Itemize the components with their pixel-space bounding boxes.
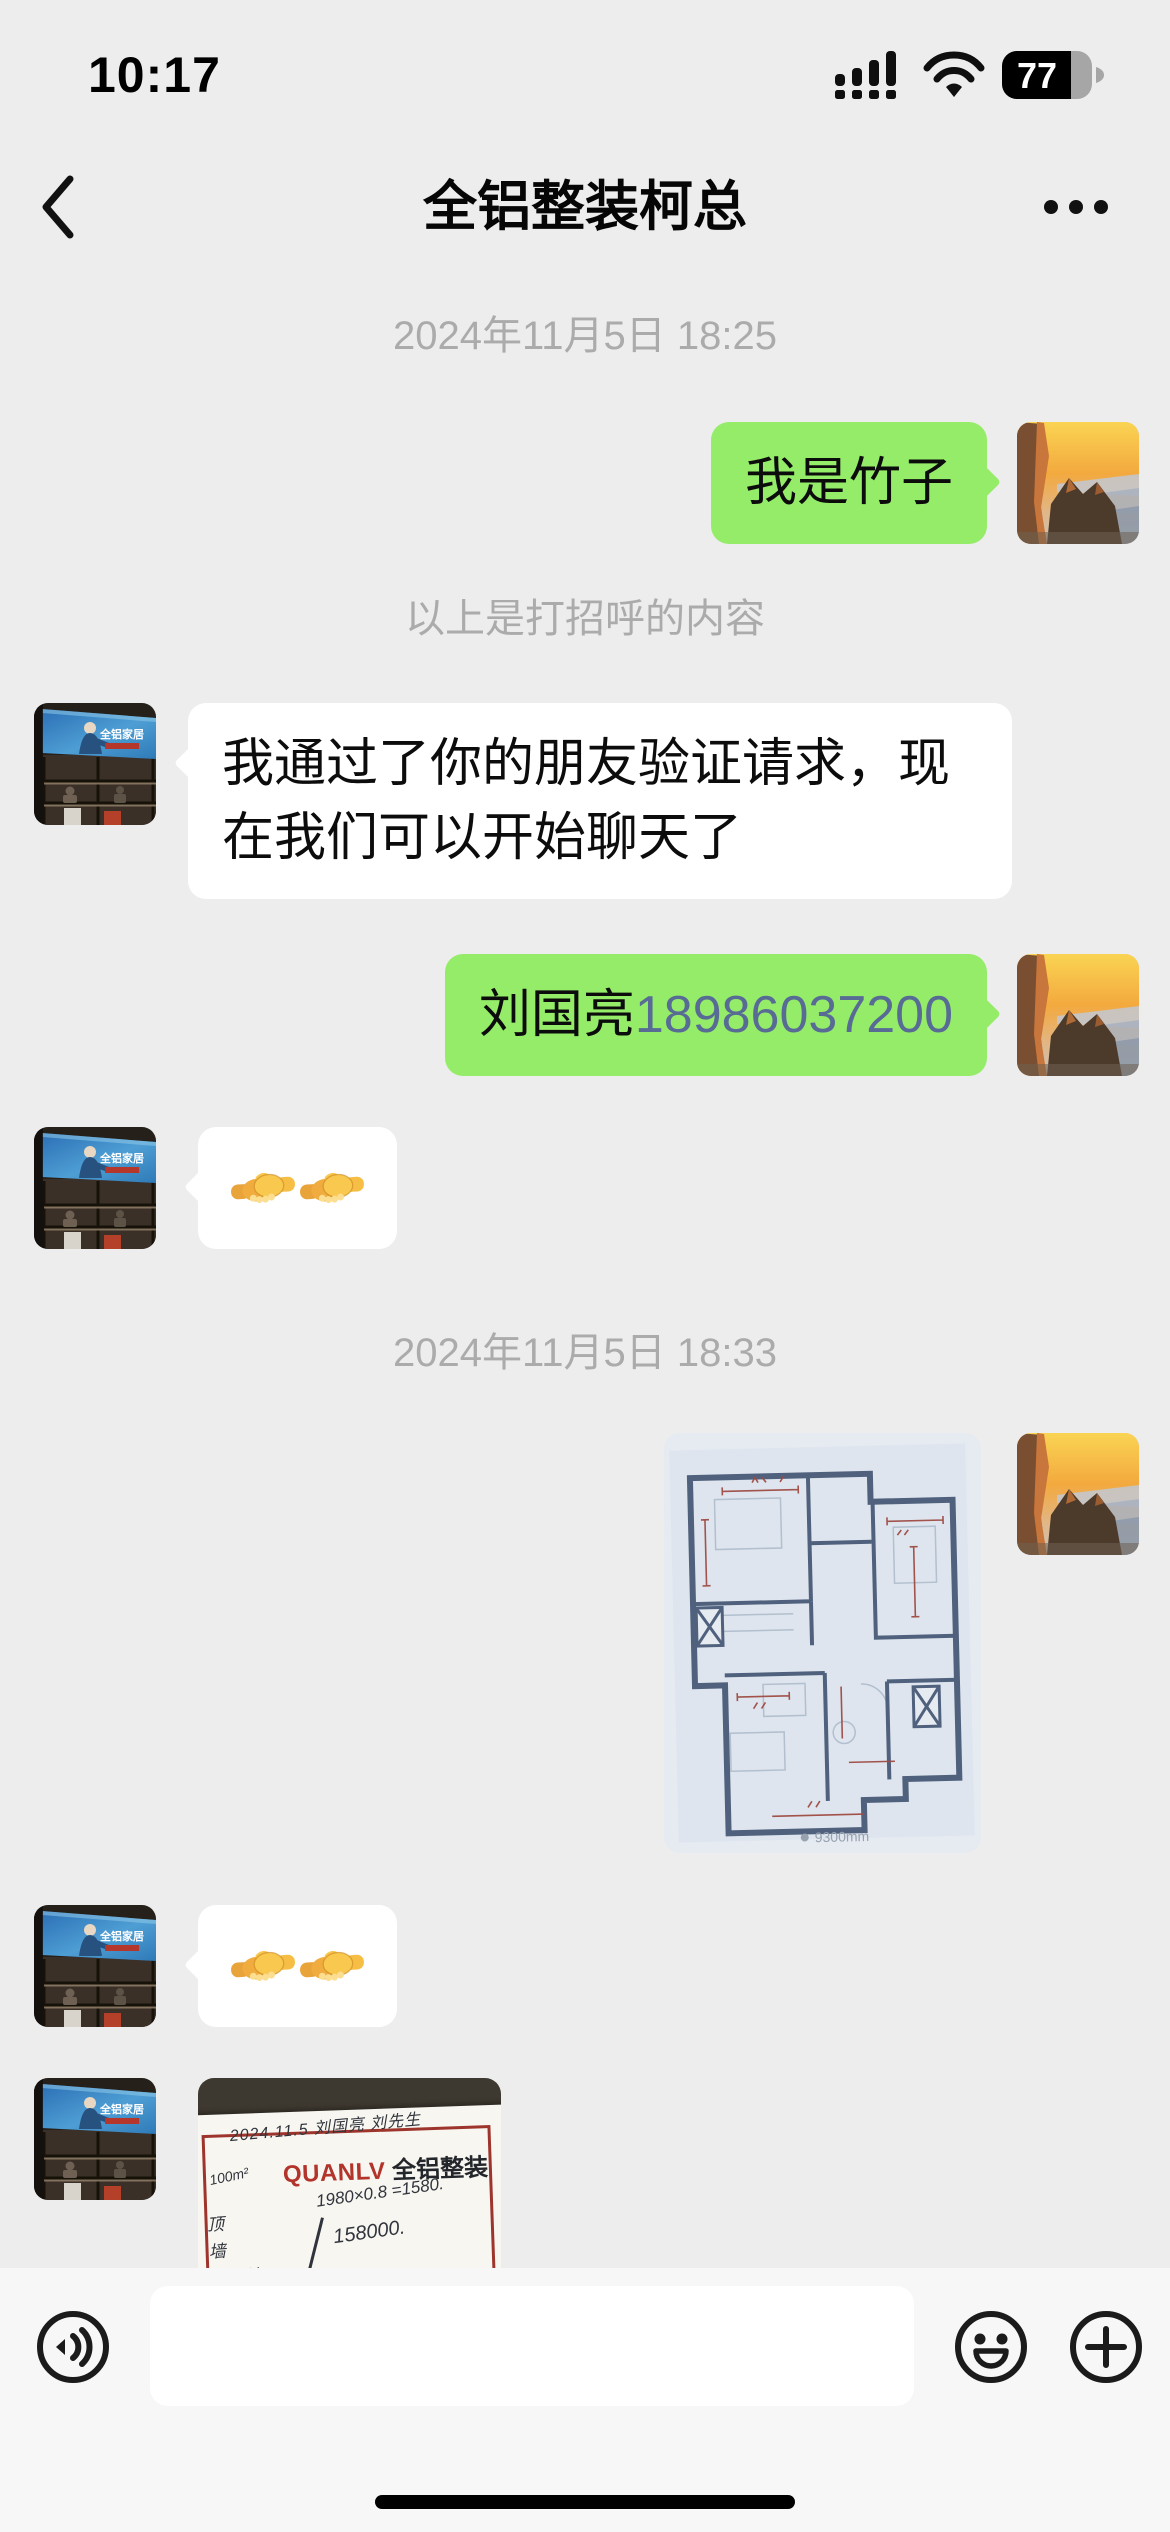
message-input[interactable]: [150, 2286, 914, 2406]
message-bubble-received[interactable]: [198, 1905, 397, 2027]
message-text: 我是竹子: [745, 454, 953, 512]
message-text: 我通过了你的朋友验证请求，现在我们可以开始聊天了: [222, 735, 950, 867]
avatar-contact[interactable]: [34, 1905, 156, 2027]
status-time: 10:17: [88, 46, 221, 104]
smiley-icon: [952, 2308, 1030, 2386]
message-bubble-received[interactable]: [198, 1127, 397, 1249]
handshake-emoji-icon: [299, 1163, 365, 1213]
cellular-signal-icon: [834, 50, 906, 100]
price-note-image[interactable]: 2024.11.5 刘国亮 刘先生 100m² QUANLV 全铝整装 1980…: [198, 2078, 501, 2292]
greeting-note: 以上是打招呼的内容: [0, 596, 1170, 642]
voice-icon: [34, 2308, 112, 2386]
avatar-contact[interactable]: [34, 2078, 156, 2200]
avatar-self[interactable]: [1017, 1433, 1139, 1555]
status-bar: 10:17 77: [0, 0, 1170, 120]
avatar-contact[interactable]: [34, 1127, 156, 1249]
message-row: 9300mm: [0, 1433, 1170, 1853]
message-row: 2024.11.5 刘国亮 刘先生 100m² QUANLV 全铝整装 1980…: [0, 2078, 1170, 2292]
message-row: [0, 1905, 1170, 2027]
emoji-button[interactable]: [952, 2308, 1030, 2386]
chat-area: 2024年11月5日 18:25 我是竹子 以上是打招呼的内容 我通过了你的朋友…: [0, 313, 1170, 2292]
more-functions-button[interactable]: [1067, 2308, 1145, 2386]
handshake-emoji-icon: [299, 1941, 365, 1991]
date-header: 2024年11月5日 18:25: [0, 313, 1170, 359]
floor-plan-graphic: 9300mm: [664, 1433, 981, 1853]
message-row: 我通过了你的朋友验证请求，现在我们可以开始聊天了: [0, 703, 1170, 899]
floorplan-watermark: 9300mm: [815, 1828, 870, 1845]
price-note-paper: 2024.11.5 刘国亮 刘先生 100m² QUANLV 全铝整装 1980…: [198, 2105, 501, 2292]
date-header: 2024年11月5日 18:33: [0, 1330, 1170, 1376]
handshake-emoji-icon: [230, 1941, 296, 1991]
message-text: 刘国亮: [479, 986, 635, 1044]
floor-plan-image[interactable]: 9300mm: [664, 1433, 981, 1853]
message-row: [0, 1127, 1170, 1249]
wifi-icon: [922, 51, 986, 99]
input-bar: [0, 2268, 1170, 2532]
chat-title: 全铝整装柯总: [423, 160, 747, 254]
message-bubble-sent[interactable]: 我是竹子: [711, 422, 987, 544]
message-bubble-sent[interactable]: 刘国亮18986037200: [445, 954, 987, 1076]
wechat-chat-screen: 10:17 77: [0, 0, 1170, 2532]
handshake-emoji-icon: [230, 1163, 296, 1213]
avatar-contact[interactable]: [34, 703, 156, 825]
nav-bar: 全铝整装柯总: [0, 120, 1170, 254]
status-icons: 77: [834, 50, 1106, 100]
plus-icon: [1067, 2308, 1145, 2386]
message-row: 我是竹子: [0, 422, 1170, 544]
message-row: 刘国亮18986037200: [0, 954, 1170, 1076]
back-icon[interactable]: [34, 171, 78, 243]
phone-link[interactable]: 18986037200: [635, 986, 953, 1044]
voice-input-button[interactable]: [34, 2308, 112, 2386]
battery-percent: 77: [1017, 55, 1057, 96]
more-options-icon[interactable]: [1038, 180, 1114, 234]
avatar-self[interactable]: [1017, 954, 1139, 1076]
message-bubble-received[interactable]: 我通过了你的朋友验证请求，现在我们可以开始聊天了: [188, 703, 1012, 899]
home-indicator[interactable]: [375, 2495, 795, 2509]
avatar-self[interactable]: [1017, 422, 1139, 544]
battery-icon: 77: [1002, 50, 1106, 100]
